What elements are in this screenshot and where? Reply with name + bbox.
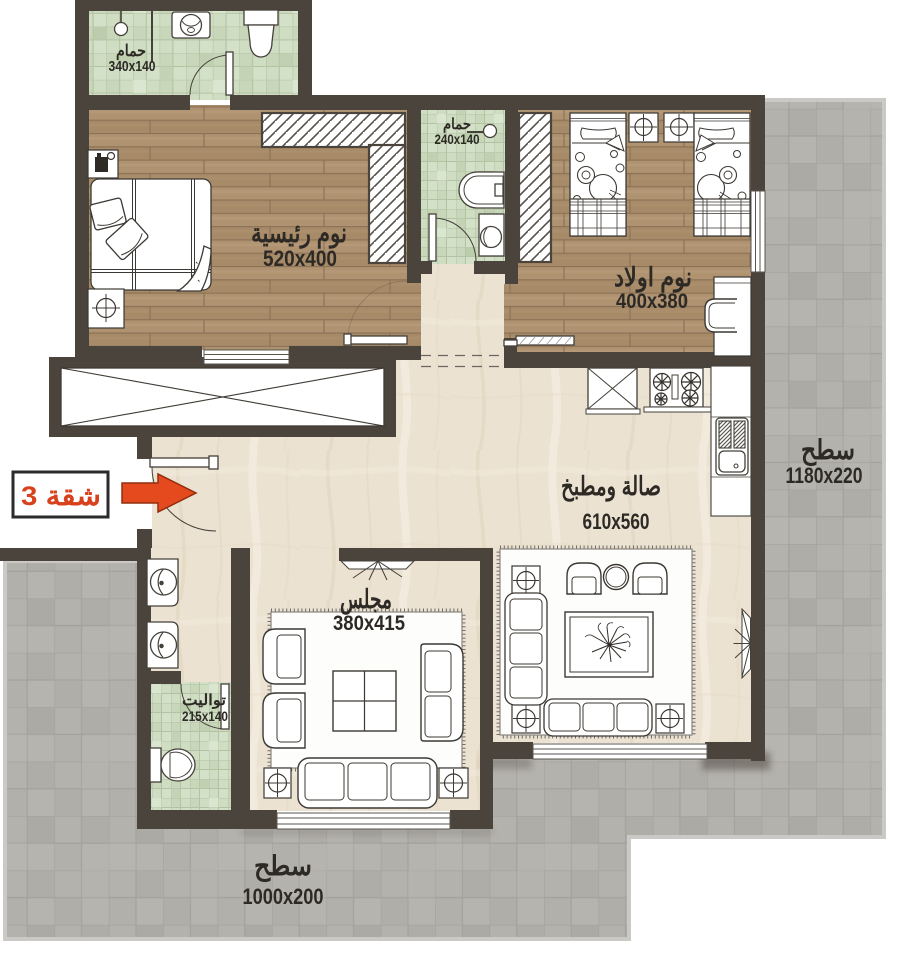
svg-text:1180x220: 1180x220 — [786, 463, 863, 488]
svg-text:400x380: 400x380 — [616, 289, 688, 313]
svg-text:610x560: 610x560 — [583, 509, 650, 534]
svg-text:تواليت: تواليت — [182, 692, 226, 709]
svg-text:سطح: سطح — [254, 851, 312, 883]
svg-text:1000x200: 1000x200 — [243, 884, 324, 909]
svg-text:380x415: 380x415 — [333, 611, 405, 635]
svg-text:520x400: 520x400 — [263, 246, 337, 271]
svg-text:نوم رئيسية: نوم رئيسية — [251, 218, 347, 249]
svg-text:215x140: 215x140 — [182, 709, 228, 724]
svg-text:حمام: حمام — [443, 116, 471, 133]
svg-text:240x140: 240x140 — [435, 132, 480, 147]
svg-text:صالة ومطبخ: صالة ومطبخ — [561, 471, 661, 502]
svg-text:340x140: 340x140 — [109, 59, 156, 75]
svg-text:شقة 3: شقة 3 — [21, 481, 101, 511]
